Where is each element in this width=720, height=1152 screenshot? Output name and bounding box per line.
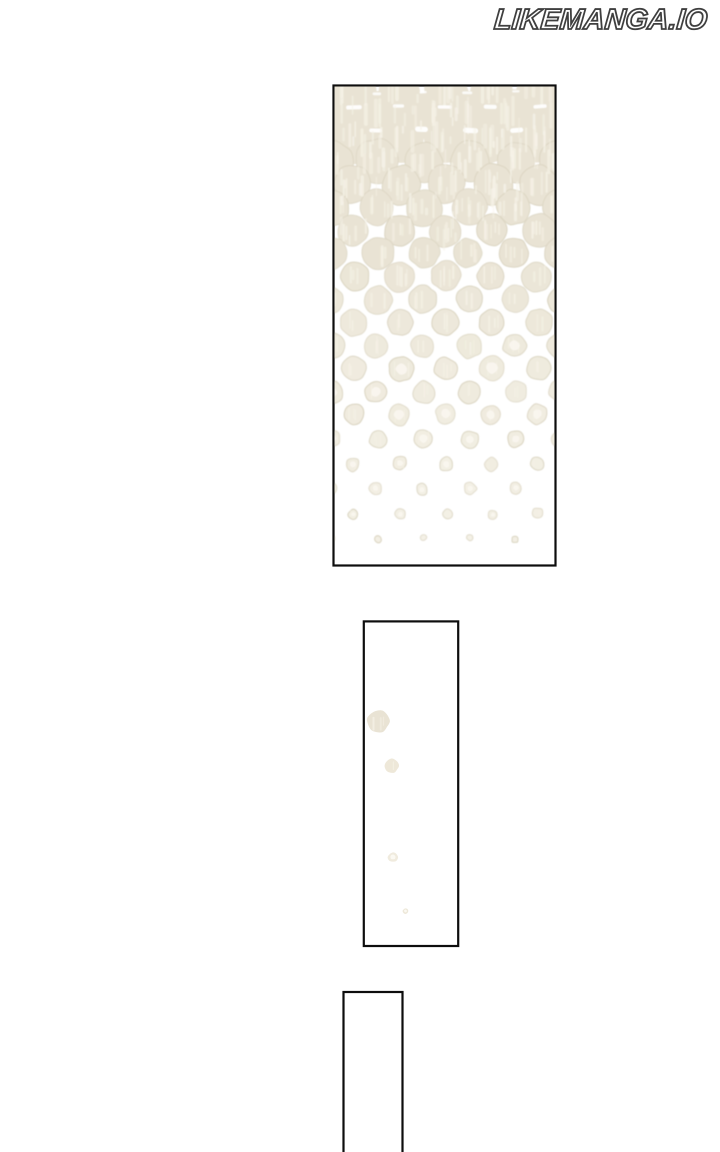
svg-text:LIKEMANGA.IO: LIKEMANGA.IO — [493, 4, 709, 36]
